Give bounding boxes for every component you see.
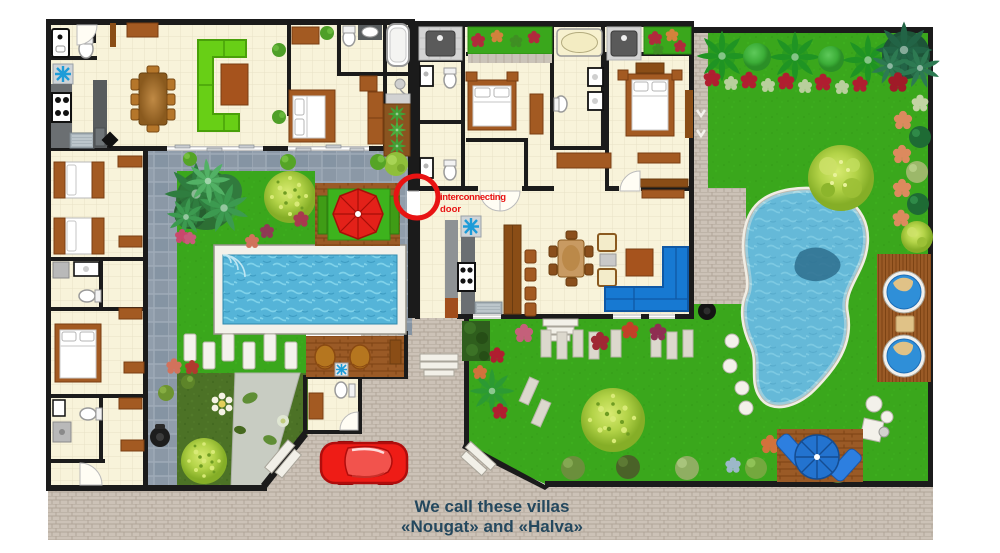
svg-text:interconnecting: interconnecting [440, 192, 506, 203]
svg-text:«Nougat» and «Halva»: «Nougat» and «Halva» [401, 517, 583, 536]
svg-text:We call these villas: We call these villas [415, 497, 570, 516]
svg-text:door: door [440, 204, 461, 215]
